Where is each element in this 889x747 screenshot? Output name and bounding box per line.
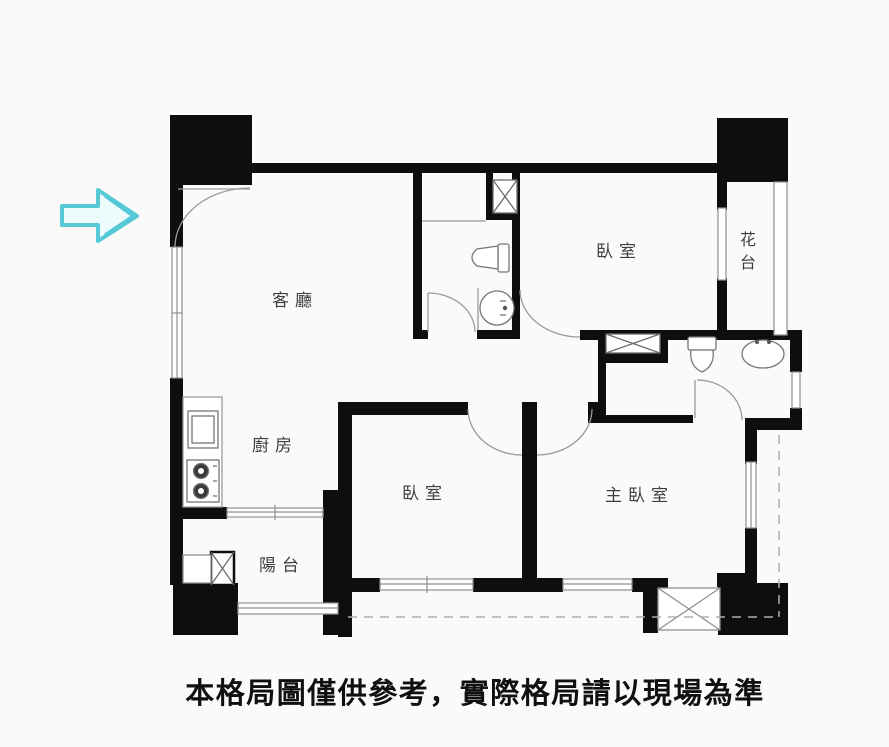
wall [473, 578, 563, 592]
bathroom2-door-arc [697, 380, 742, 420]
room-label-balcony: 陽台 [259, 558, 305, 575]
room-label-kitchen: 廚房 [252, 438, 298, 455]
wall [338, 402, 352, 637]
wall [643, 583, 658, 633]
room-label-bedroom-bottom: 臥室 [402, 486, 448, 503]
bedroom1-door-arc [520, 290, 580, 337]
wall [717, 182, 727, 210]
bathroom1-door-arc [428, 293, 475, 332]
floor-plan-image: 客廳 廚房 陽台 臥室 臥室 主臥室 花台 本格局圖僅供參考，實際格局請以現場為… [0, 0, 889, 747]
balcony-cabinet [183, 555, 211, 583]
toilet-icon [688, 337, 716, 372]
wall [790, 330, 802, 372]
wall [717, 278, 727, 335]
wall [413, 173, 422, 339]
low-window-x-icon [658, 588, 720, 630]
window [792, 372, 800, 408]
disclaimer-caption: 本格局圖僅供參考，實際格局請以現場為準 [0, 676, 889, 711]
room-label-flower-stand: 花台 [738, 231, 754, 277]
room-label-bedroom-top: 臥室 [596, 244, 642, 261]
entrance-door-arc [175, 188, 250, 247]
wall [170, 378, 183, 585]
column-bottom-left [173, 583, 238, 635]
wall [250, 163, 722, 173]
windows [172, 182, 800, 614]
oval-sink-icon [742, 340, 784, 368]
window [718, 208, 726, 280]
bedroom2-door-arc [468, 409, 522, 455]
wall [522, 402, 537, 592]
column-bottom-right [718, 583, 788, 635]
wall [477, 330, 520, 339]
column-top-right [717, 118, 788, 182]
room-label-master-bedroom: 主臥室 [605, 488, 674, 505]
stove-icon [187, 460, 219, 502]
hall-cabinet-x-icon [606, 334, 660, 353]
wall [745, 418, 757, 464]
wall [598, 353, 668, 363]
wall [338, 402, 468, 415]
kitchen-sink-icon [188, 411, 218, 448]
master-door-arc [537, 409, 592, 455]
column-top-left [170, 115, 252, 185]
pipe-shaft-x-icon [493, 180, 517, 213]
floor-plan-drawing [0, 0, 889, 747]
wall [598, 415, 693, 423]
wall [486, 213, 517, 220]
fixtures [183, 244, 784, 507]
balcony-shaft-x-icon [211, 552, 234, 585]
entrance-arrow-icon [62, 190, 137, 241]
wall [717, 573, 747, 587]
wall [413, 330, 428, 339]
toilet-icon [472, 244, 509, 272]
round-sink-icon [480, 291, 514, 325]
wall [486, 173, 493, 220]
wall [182, 507, 227, 519]
kitchen-counter [183, 397, 222, 507]
flower-stand-edge [774, 182, 787, 335]
room-label-living-room: 客廳 [272, 293, 318, 310]
